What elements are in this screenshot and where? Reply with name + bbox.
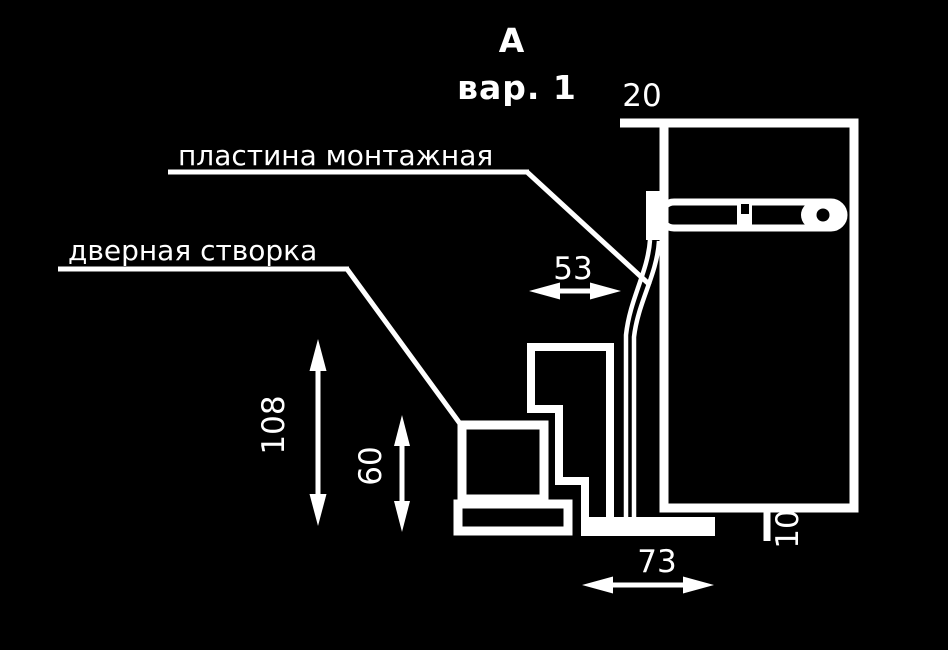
door-leaf-leader-line: [347, 269, 461, 425]
bottom-ledge: [581, 517, 715, 536]
dim-108-value: 108: [256, 395, 292, 454]
dim-73: 73: [582, 544, 714, 594]
dim-108: 108: [256, 339, 327, 526]
door-leaf-base: [458, 504, 568, 531]
dim-73-arrowhead-right: [683, 577, 714, 594]
technical-drawing-canvas: А вар. 1 пластина монтажная дверная ство…: [0, 0, 948, 650]
dim-60: 60: [353, 415, 410, 532]
bent-strip: [626, 240, 659, 522]
section-a-variant1-drawing: А вар. 1 пластина монтажная дверная ство…: [0, 0, 948, 650]
mounting-plate-arm: [646, 191, 845, 240]
variant-label: вар. 1: [457, 68, 577, 107]
dim-73-value: 73: [637, 544, 676, 580]
dim-53-value: 53: [553, 251, 592, 287]
dim-10-value: 10: [770, 509, 806, 548]
dim-53: 53: [529, 251, 621, 300]
dim-108-arrowhead-bottom: [310, 494, 327, 526]
dim-53-arrowhead-left: [529, 283, 560, 300]
dim-53-arrowhead-right: [590, 283, 621, 300]
plate-screw-hole: [817, 209, 830, 222]
dim-10: 10: [767, 509, 806, 548]
mounting-plate-label: пластина монтажная: [178, 139, 493, 172]
door-leaf-profile: [458, 425, 568, 531]
dim-20: 20: [622, 78, 661, 114]
dim-73-arrowhead-left: [582, 577, 613, 594]
frame-profile: [620, 123, 854, 508]
dim-60-arrowhead-bottom: [394, 501, 410, 532]
door-leaf-block: [462, 425, 544, 499]
dim-60-arrowhead-top: [394, 415, 410, 446]
frame-outline: [664, 123, 854, 508]
dim-108-arrowhead-top: [310, 339, 327, 371]
dim-20-value: 20: [622, 78, 661, 114]
drawing-title: А вар. 1: [457, 21, 577, 107]
door-leaf-label: дверная створка: [68, 234, 317, 267]
view-letter: А: [499, 21, 526, 60]
plate-mid-notch: [741, 204, 749, 214]
dim-60-value: 60: [353, 446, 389, 485]
